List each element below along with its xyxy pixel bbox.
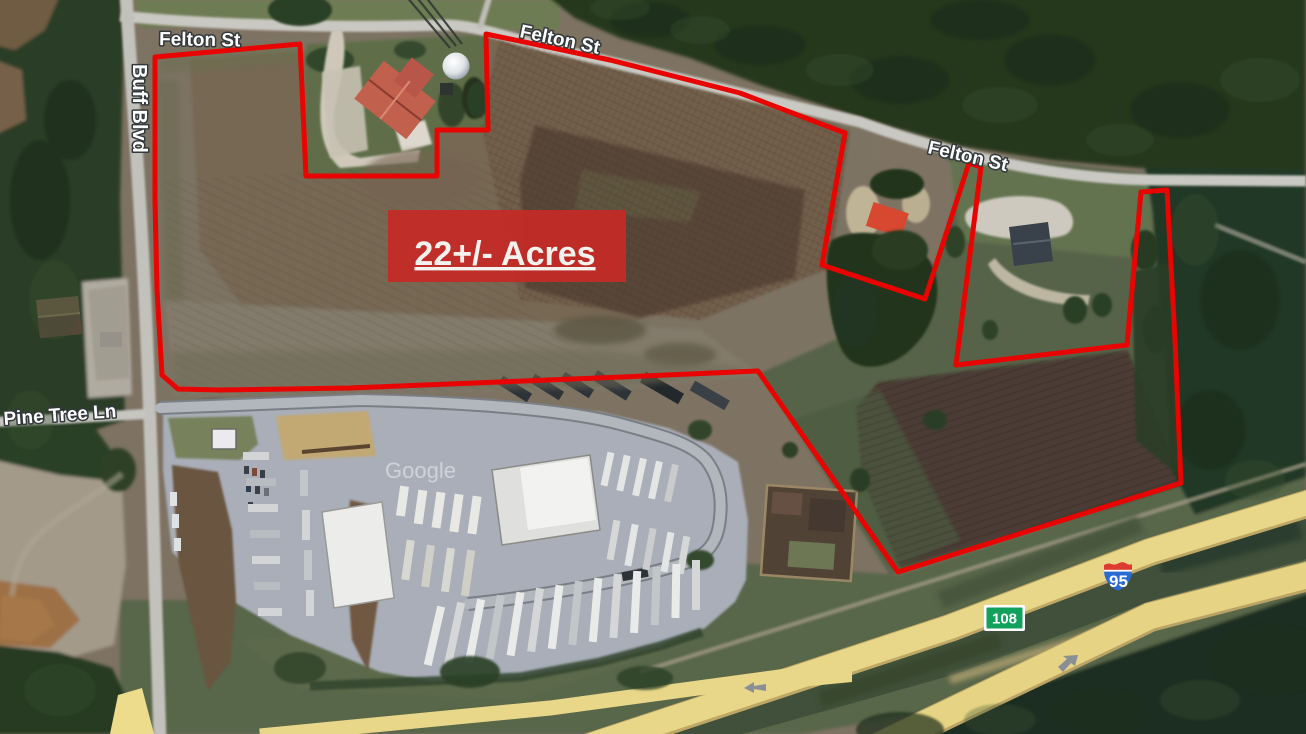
svg-text:108: 108 [992,611,1017,628]
svg-text:Buff Blvd: Buff Blvd [128,64,150,153]
svg-text:22+/- Acres: 22+/- Acres [414,235,595,273]
svg-text:95: 95 [1109,572,1128,591]
svg-text:Felton St: Felton St [159,29,241,51]
svg-text:Google: Google [385,458,456,483]
